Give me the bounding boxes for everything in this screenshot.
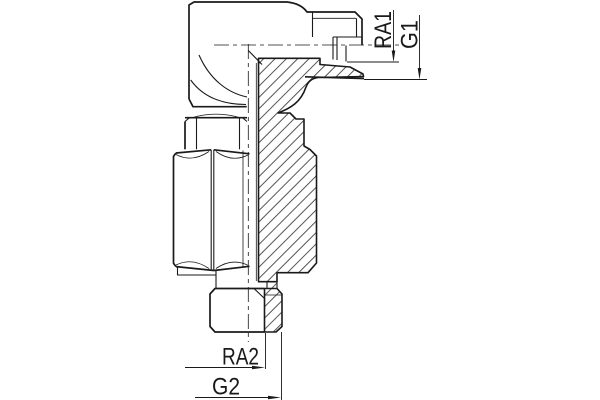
g2-label: G2	[212, 374, 240, 400]
hex-top-edge-left	[176, 150, 211, 153]
g1-label: G1	[397, 20, 424, 49]
ra1-arrowhead	[392, 51, 396, 63]
small-hex-nut	[185, 114, 247, 149]
bottom-stud	[210, 289, 265, 333]
ra1-label: RA1	[370, 11, 397, 49]
elbow-inner-curve-upper	[199, 55, 247, 97]
drawing-canvas: RA1 G1 RA2 G2	[0, 0, 600, 400]
section-neck	[267, 282, 277, 289]
elbow-fitting-technical-drawing: RA1 G1 RA2 G2	[0, 0, 600, 400]
hex-bottom-edge-right	[214, 266, 250, 270]
g1-arrowhead	[418, 68, 422, 80]
dimension-ra2: RA2	[185, 333, 266, 371]
section-cut	[248, 51, 363, 333]
stud-chamfer-line	[254, 289, 265, 299]
elbow-inner-curve-lower	[191, 80, 246, 105]
hex-left-edge	[174, 153, 177, 267]
dimension-ra1: RA1	[347, 10, 399, 62]
g2-arrowhead	[268, 396, 281, 400]
ra2-label: RA2	[222, 344, 259, 371]
stud-outline	[210, 289, 265, 333]
large-hex-body	[174, 150, 250, 289]
section-body	[259, 58, 364, 281]
hex-bottom-edge-left	[176, 267, 214, 271]
